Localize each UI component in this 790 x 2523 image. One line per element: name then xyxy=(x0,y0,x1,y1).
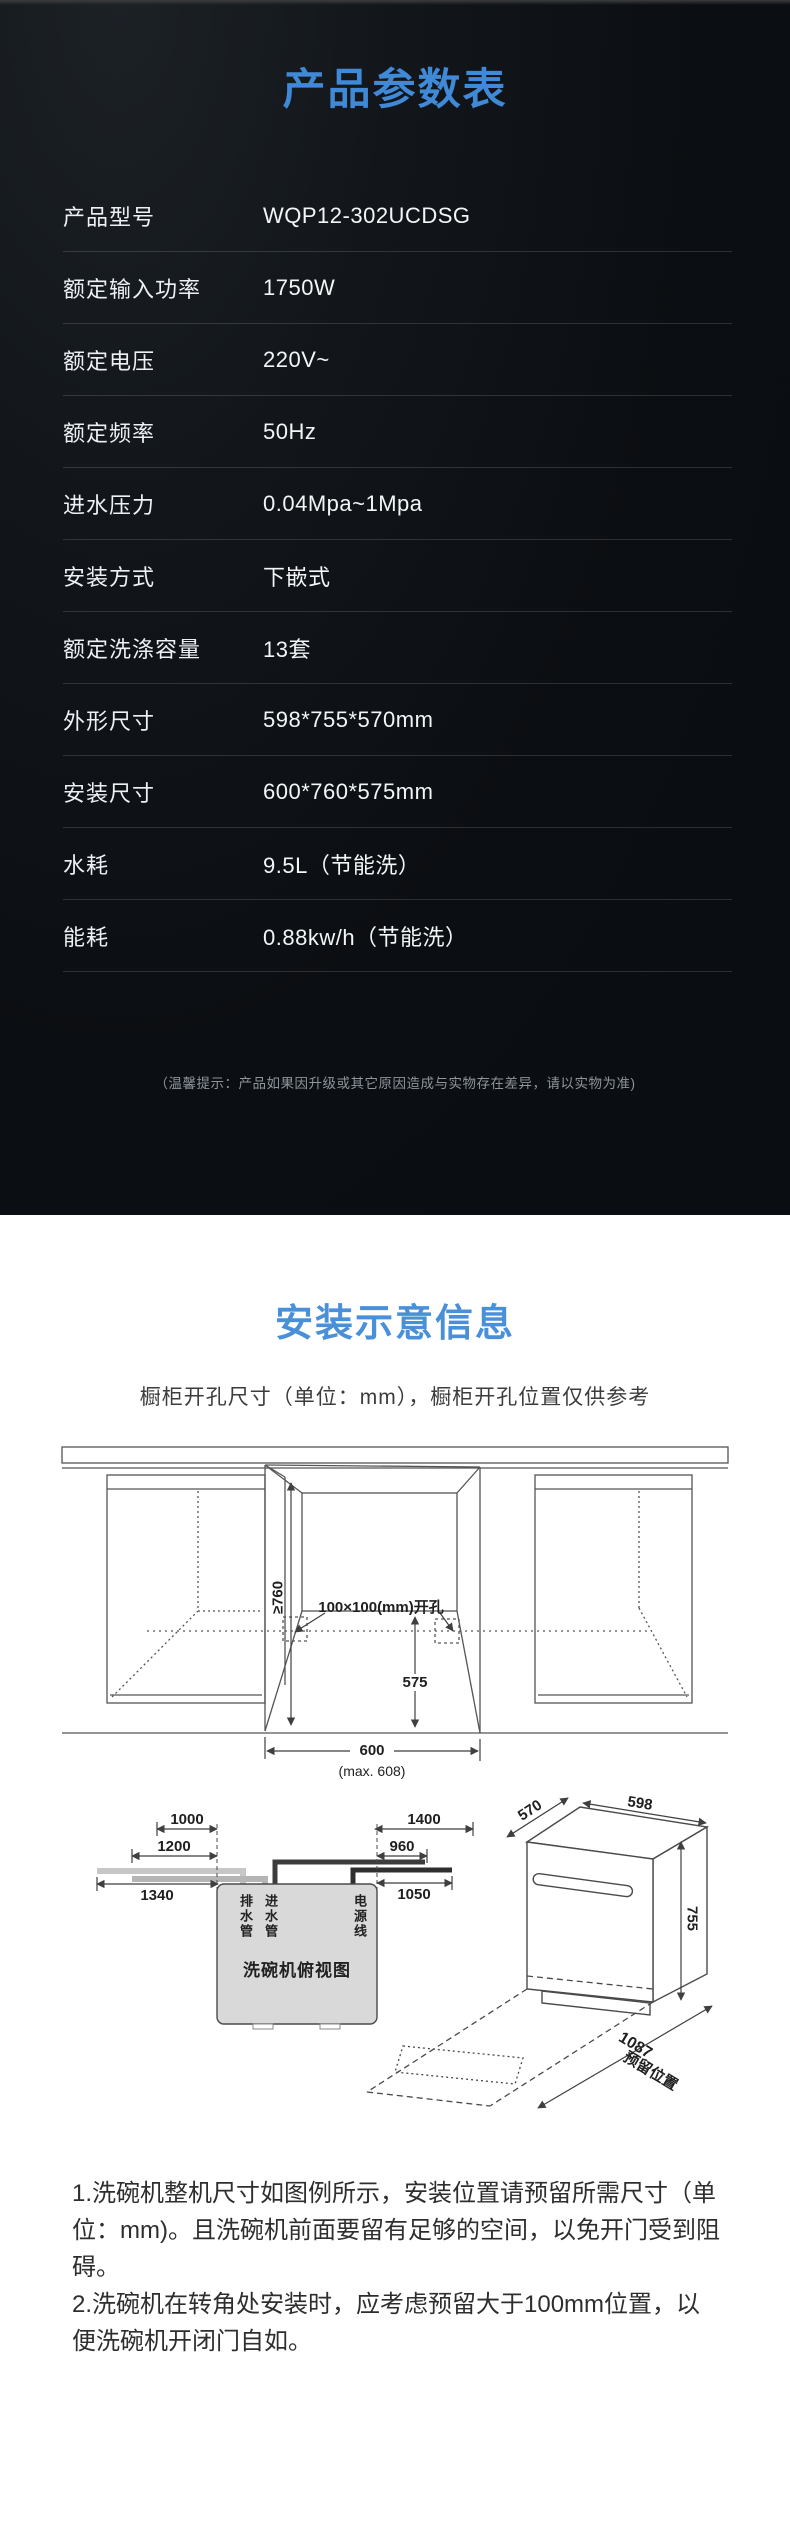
row-value: 0.88kw/h（节能洗） xyxy=(263,920,468,952)
install-title: 安装示意信息 xyxy=(0,1215,790,1347)
row-label: 额定频率 xyxy=(63,416,263,448)
dim-cord-960: 960 xyxy=(372,1838,432,1855)
spec-title: 产品参数表 xyxy=(0,0,790,116)
spec-table: 产品型号 WQP12-302UCDSG 额定输入功率 1750W 额定电压 22… xyxy=(63,180,732,972)
dim-cabinet-width-max: (max. 608) xyxy=(332,1763,412,1779)
row-value: 9.5L（节能洗） xyxy=(263,848,420,880)
table-row: 额定频率 50Hz xyxy=(63,396,732,468)
dim-hose-1000: 1000 xyxy=(157,1811,217,1828)
row-value: 600*760*575mm xyxy=(263,779,433,805)
dim-hose-1200: 1200 xyxy=(144,1838,204,1855)
row-value: 50Hz xyxy=(263,419,316,445)
table-row: 能耗 0.88kw/h（节能洗） xyxy=(63,900,732,972)
dim-cord-1050: 1050 xyxy=(384,1886,444,1903)
row-value: 13套 xyxy=(263,632,311,664)
row-value: 1750W xyxy=(263,275,335,301)
row-label: 外形尺寸 xyxy=(63,704,263,736)
row-value: WQP12-302UCDSG xyxy=(263,203,471,229)
install-section: 安装示意信息 橱柜开孔尺寸（单位：mm），橱柜开孔位置仅供参考 xyxy=(0,1215,790,2523)
spec-section: 产品参数表 产品型号 WQP12-302UCDSG 额定输入功率 1750W 额… xyxy=(0,0,790,1215)
row-value: 0.04Mpa~1Mpa xyxy=(263,491,423,517)
row-value: 220V~ xyxy=(263,347,330,373)
disclaimer-text: （温馨提示：产品如果因升级或其它原因造成与实物存在差异，请以实物为准) xyxy=(0,1072,790,1092)
top-glow-strip xyxy=(0,0,790,5)
table-row: 额定输入功率 1750W xyxy=(63,252,732,324)
table-row: 额定洗涤容量 13套 xyxy=(63,612,732,684)
row-label: 安装方式 xyxy=(63,560,263,592)
dim-machine-height: 755 xyxy=(684,1897,701,1941)
dim-cord-1400: 1400 xyxy=(394,1811,454,1828)
row-value: 598*755*570mm xyxy=(263,707,433,733)
power-cord-label: 电源线 xyxy=(350,1894,369,1939)
row-label: 额定电压 xyxy=(63,344,263,376)
install-subtitle: 橱柜开孔尺寸（单位：mm），橱柜开孔位置仅供参考 xyxy=(0,1381,790,1411)
dim-hose-1340: 1340 xyxy=(127,1887,187,1904)
row-label: 安装尺寸 xyxy=(63,776,263,808)
row-label: 进水压力 xyxy=(63,488,263,520)
topview-title: 洗碗机俯视图 xyxy=(220,1956,374,1981)
machine-diagrams: 排水管 进水管 电源线 洗碗机俯视图 1000 1200 1340 1400 9… xyxy=(60,1794,780,2159)
dim-cabinet-width: 600 xyxy=(350,1742,394,1759)
table-row: 额定电压 220V~ xyxy=(63,324,732,396)
row-label: 额定洗涤容量 xyxy=(63,632,263,664)
table-row: 安装尺寸 600*760*575mm xyxy=(63,756,732,828)
cabinet-cutout-diagram: ≥760 100×100(mm)开孔 575 600 (max. 608) xyxy=(55,1441,740,1786)
row-label: 产品型号 xyxy=(63,200,263,232)
product-detail-page: 产品参数表 产品型号 WQP12-302UCDSG 额定输入功率 1750W 额… xyxy=(0,0,790,2523)
table-row: 产品型号 WQP12-302UCDSG xyxy=(63,180,732,252)
row-label: 额定输入功率 xyxy=(63,272,263,304)
install-notes: 1.洗碗机整机尺寸如图例所示，安装位置请预留所需尺寸（单位：mm)。且洗碗机前面… xyxy=(72,2175,720,2360)
row-label: 水耗 xyxy=(63,848,263,880)
dim-cabinet-depth: 575 xyxy=(393,1674,437,1691)
note-line: 1.洗碗机整机尺寸如图例所示，安装位置请预留所需尺寸（单位：mm)。且洗碗机前面… xyxy=(72,2175,720,2286)
row-value: 下嵌式 xyxy=(263,560,331,592)
inlet-pipe-label: 进水管 xyxy=(261,1894,280,1939)
cutout-label: 100×100(mm)开孔 xyxy=(295,1596,467,1617)
table-row: 水耗 9.5L（节能洗） xyxy=(63,828,732,900)
dim-cabinet-height: ≥760 xyxy=(270,1575,287,1621)
table-row: 进水压力 0.04Mpa~1Mpa xyxy=(63,468,732,540)
note-line: 2.洗碗机在转角处安装时，应考虑预留大于100mm位置，以便洗碗机开闭门自如。 xyxy=(72,2286,720,2360)
table-row: 安装方式 下嵌式 xyxy=(63,540,732,612)
drain-pipe-label: 排水管 xyxy=(236,1894,255,1939)
row-label: 能耗 xyxy=(63,920,263,952)
table-row: 外形尺寸 598*755*570mm xyxy=(63,684,732,756)
